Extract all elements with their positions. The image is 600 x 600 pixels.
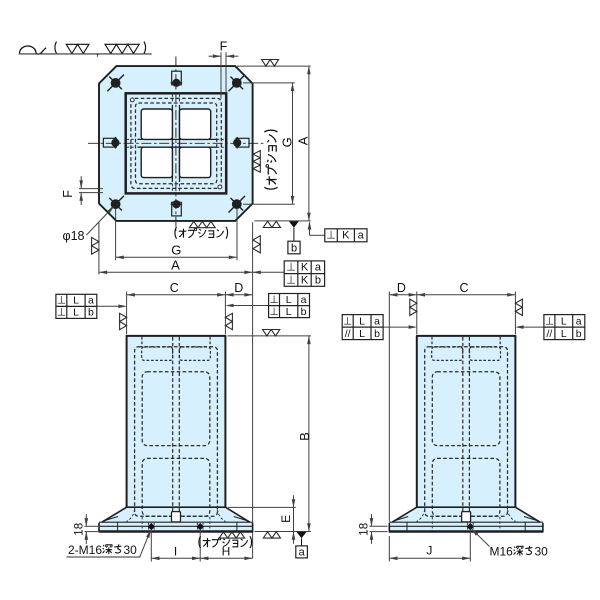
svg-text:⊥: ⊥ bbox=[343, 315, 352, 327]
svg-text:⊥: ⊥ bbox=[57, 307, 66, 319]
svg-text:D: D bbox=[397, 281, 406, 295]
svg-text:G: G bbox=[279, 137, 294, 147]
svg-text:M16: M16 bbox=[490, 545, 514, 559]
svg-text:A: A bbox=[296, 136, 311, 145]
svg-text:30: 30 bbox=[124, 543, 138, 557]
svg-text:L: L bbox=[286, 294, 292, 306]
svg-text:L: L bbox=[561, 328, 567, 340]
svg-text:E: E bbox=[279, 515, 293, 523]
svg-text:⊥: ⊥ bbox=[270, 294, 279, 306]
svg-text://: // bbox=[546, 328, 552, 340]
svg-text:18: 18 bbox=[359, 523, 371, 536]
svg-text:L: L bbox=[359, 315, 365, 327]
svg-text:⊥: ⊥ bbox=[545, 315, 554, 327]
svg-text:B: B bbox=[297, 432, 312, 441]
svg-text:b: b bbox=[301, 306, 307, 318]
svg-text:L: L bbox=[561, 315, 567, 327]
svg-text:C: C bbox=[459, 281, 468, 295]
svg-text:L: L bbox=[286, 306, 292, 318]
svg-text:b: b bbox=[88, 307, 94, 319]
svg-text:A: A bbox=[171, 257, 180, 272]
svg-text:⊥: ⊥ bbox=[326, 230, 336, 242]
svg-text://: // bbox=[345, 328, 351, 340]
svg-text:18: 18 bbox=[74, 523, 86, 536]
svg-text:⊥: ⊥ bbox=[57, 295, 66, 307]
svg-text:K: K bbox=[301, 262, 309, 274]
svg-text:30: 30 bbox=[535, 545, 549, 559]
svg-text:a: a bbox=[88, 295, 94, 307]
svg-text:a: a bbox=[576, 315, 582, 327]
svg-text:φ18: φ18 bbox=[62, 229, 84, 243]
svg-text:a: a bbox=[299, 547, 306, 559]
svg-text:⊥: ⊥ bbox=[286, 274, 296, 286]
svg-text:J: J bbox=[426, 544, 432, 558]
svg-text:F: F bbox=[220, 40, 228, 54]
svg-text:a: a bbox=[374, 315, 380, 327]
svg-text:⊥: ⊥ bbox=[270, 306, 279, 318]
svg-text:b: b bbox=[576, 328, 582, 340]
svg-text:K: K bbox=[342, 230, 350, 242]
svg-text:b: b bbox=[374, 328, 380, 340]
svg-text:,: , bbox=[96, 42, 100, 58]
svg-text:F: F bbox=[61, 190, 75, 198]
svg-text:a: a bbox=[315, 262, 322, 274]
svg-text:I: I bbox=[174, 545, 177, 559]
svg-text:G: G bbox=[171, 242, 181, 257]
svg-text:L: L bbox=[73, 295, 79, 307]
svg-text:b: b bbox=[315, 274, 321, 286]
svg-text:2-M16: 2-M16 bbox=[68, 543, 102, 557]
svg-text:K: K bbox=[301, 274, 309, 286]
svg-text:D: D bbox=[234, 281, 243, 295]
svg-text:⊥: ⊥ bbox=[286, 262, 296, 274]
svg-text:a: a bbox=[301, 294, 307, 306]
svg-text:b: b bbox=[291, 243, 297, 255]
svg-text:a: a bbox=[358, 230, 365, 242]
svg-text:C: C bbox=[170, 281, 179, 295]
svg-text:L: L bbox=[73, 307, 79, 319]
svg-text:H: H bbox=[222, 545, 231, 559]
svg-text:L: L bbox=[359, 328, 365, 340]
